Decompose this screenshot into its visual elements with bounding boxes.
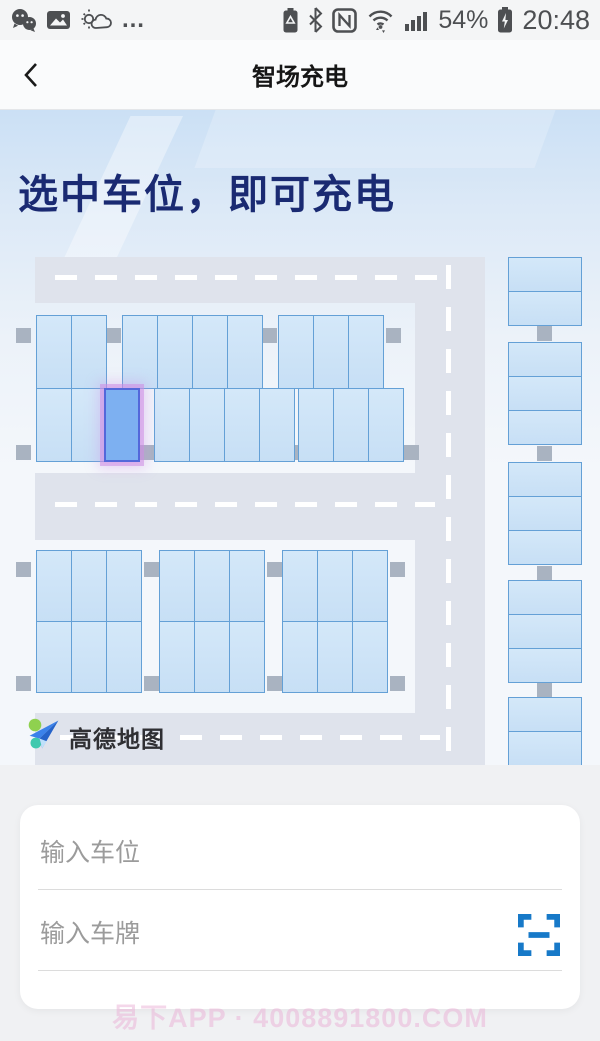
pillar (537, 683, 552, 698)
status-left-icons: … (10, 8, 147, 33)
parking-spot[interactable] (508, 257, 582, 292)
parking-spot[interactable] (317, 621, 353, 693)
signal-icon (404, 8, 429, 32)
road-dash (446, 265, 451, 760)
parking-spot[interactable] (224, 388, 260, 462)
pillar (106, 328, 121, 343)
nav-bar: 智场充电 (0, 40, 600, 110)
parking-spot[interactable] (508, 530, 582, 565)
pillar (386, 328, 401, 343)
parking-spot[interactable] (154, 388, 190, 462)
watermark-text: 易下APP · 4008891800.COM (0, 996, 600, 1035)
clock: 20:48 (522, 5, 590, 36)
battery-percent: 54% (438, 6, 488, 35)
pillar (537, 446, 552, 461)
more-icon: … (121, 15, 147, 25)
gallery-icon (46, 8, 71, 32)
parking-spot[interactable] (508, 376, 582, 411)
back-button[interactable] (18, 60, 48, 90)
parking-spot[interactable] (189, 388, 225, 462)
parking-spot[interactable] (157, 315, 193, 389)
parking-spot[interactable] (229, 621, 265, 693)
parking-spot[interactable] (282, 550, 318, 622)
hero-section: 选中车位，即可充电 高德地图 (0, 110, 600, 765)
pillar (267, 562, 282, 577)
pillar (16, 328, 31, 343)
pillar (16, 676, 31, 691)
status-bar: … (0, 0, 600, 40)
parking-spot[interactable] (508, 697, 582, 732)
parking-spot[interactable] (36, 315, 72, 389)
parking-spot[interactable] (106, 550, 142, 622)
status-right-icons: 54% 20:48 (282, 5, 590, 36)
parking-spot[interactable] (298, 388, 334, 462)
parking-spot[interactable] (368, 388, 404, 462)
battery-charging-icon (497, 7, 513, 33)
parking-spot[interactable] (229, 550, 265, 622)
parking-spot[interactable] (508, 291, 582, 326)
parking-spot[interactable] (36, 388, 72, 462)
road-dash (55, 275, 455, 280)
parking-spot[interactable] (194, 550, 230, 622)
spot-input-row (38, 805, 562, 890)
pillar (537, 566, 552, 581)
parking-spot[interactable] (508, 496, 582, 531)
parking-spot[interactable] (259, 388, 295, 462)
bluetooth-icon (308, 7, 323, 33)
plate-input-row (38, 890, 562, 971)
parking-map[interactable]: 高德地图 (0, 110, 600, 765)
battery-saver-icon (282, 8, 299, 33)
pillar (16, 445, 31, 460)
parking-spot[interactable] (106, 621, 142, 693)
parking-spot[interactable] (71, 315, 107, 389)
parking-spot[interactable] (508, 410, 582, 445)
pillar (144, 676, 159, 691)
input-card (20, 805, 580, 1009)
parking-spot[interactable] (508, 648, 582, 683)
spot-input[interactable] (38, 835, 496, 871)
nfc-icon (332, 8, 357, 33)
parking-spot[interactable] (313, 315, 349, 389)
page-title: 智场充电 (0, 57, 600, 92)
parking-spot[interactable] (348, 315, 384, 389)
parking-spot[interactable] (508, 462, 582, 497)
pillar (537, 326, 552, 341)
pillar (267, 676, 282, 691)
parking-spot[interactable] (508, 580, 582, 615)
pillar (390, 676, 405, 691)
bottom-section: 易下APP · 4008891800.COM (0, 765, 600, 1041)
parking-spot[interactable] (333, 388, 369, 462)
parking-spot[interactable] (122, 315, 158, 389)
pillar (390, 562, 405, 577)
parking-spot[interactable] (194, 621, 230, 693)
parking-spot[interactable] (282, 621, 318, 693)
parking-spot[interactable] (36, 621, 72, 693)
parking-spot[interactable] (278, 315, 314, 389)
pillar (16, 562, 31, 577)
road-dash (55, 502, 435, 507)
parking-spot[interactable] (352, 550, 388, 622)
app-screen: … (0, 0, 600, 1041)
selected-parking-spot[interactable] (104, 388, 140, 462)
parking-spot[interactable] (317, 550, 353, 622)
wechat-icon (10, 8, 37, 33)
amap-logo-icon (26, 716, 62, 758)
pillar (144, 562, 159, 577)
parking-spot[interactable] (352, 621, 388, 693)
parking-spot[interactable] (71, 550, 107, 622)
parking-spot[interactable] (508, 342, 582, 377)
wifi-icon (366, 7, 395, 33)
map-attribution: 高德地图 (26, 716, 165, 758)
parking-spot[interactable] (227, 315, 263, 389)
pillar (139, 445, 154, 460)
scan-plate-icon[interactable] (518, 914, 560, 956)
pillar (404, 445, 419, 460)
parking-spot[interactable] (508, 614, 582, 649)
weather-icon (80, 8, 112, 33)
parking-spot[interactable] (508, 731, 582, 765)
parking-spot[interactable] (192, 315, 228, 389)
amap-logo-text: 高德地图 (69, 720, 165, 754)
parking-spot[interactable] (71, 388, 107, 462)
plate-input[interactable] (38, 916, 496, 952)
parking-spot[interactable] (36, 550, 72, 622)
parking-spot[interactable] (159, 550, 195, 622)
parking-spot[interactable] (71, 621, 107, 693)
pillar (262, 328, 277, 343)
parking-spot[interactable] (159, 621, 195, 693)
